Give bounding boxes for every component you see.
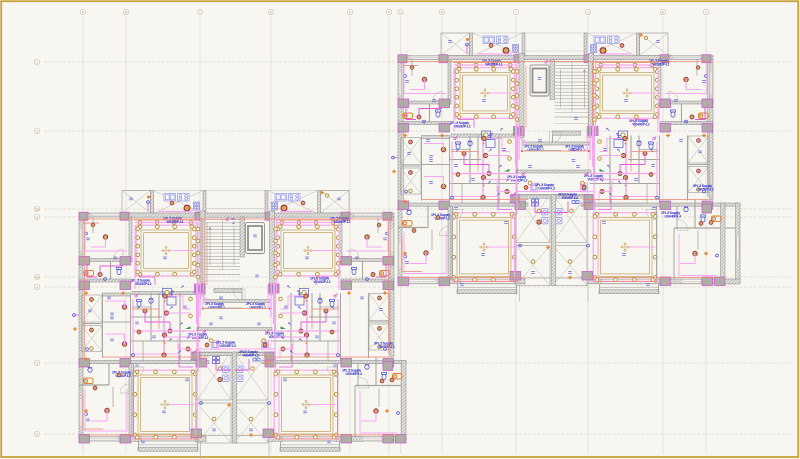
svg-text:1PL.5 SupplyUG040P-L4: 1PL.5 SupplyUG040P-L4 [342, 369, 362, 376]
svg-text:G: G [399, 10, 402, 14]
svg-text:1PL.5 SupplyUG0DP-L2: 1PL.5 SupplyUG0DP-L2 [431, 213, 450, 220]
svg-text:I: I [516, 10, 517, 14]
svg-text:4: 4 [36, 285, 38, 289]
svg-text:1PL.5 SupplyW030DP-L2: 1PL.5 SupplyW030DP-L2 [131, 279, 152, 286]
svg-text:C: C [199, 10, 202, 14]
svg-text:1PL.5 SupplyUG040P-L4: 1PL.5 SupplyUG040P-L4 [661, 211, 681, 218]
svg-text:1PL.5 SupplyW030DP-L2: 1PL.5 SupplyW030DP-L2 [450, 121, 471, 128]
svg-text:1PL.5 SupplyUG030P-L2: 1PL.5 SupplyUG030P-L2 [535, 183, 555, 190]
svg-text:6: 6 [36, 432, 38, 436]
svg-text:D: D [270, 10, 273, 14]
svg-text:2P2.5 SupplyVG040P-L2: 2P2.5 SupplyVG040P-L2 [558, 193, 578, 200]
svg-text:4a: 4a [35, 275, 39, 279]
svg-text:1PL.5 SupplyUG030P-L2: 1PL.5 SupplyUG030P-L2 [216, 341, 236, 348]
svg-text:J: J [587, 10, 589, 14]
svg-text:L: L [705, 10, 707, 14]
svg-text:1PL.5 SupplyUG0DP-L2: 1PL.5 SupplyUG0DP-L2 [112, 371, 131, 378]
svg-text:3a: 3a [35, 207, 39, 211]
svg-text:5: 5 [36, 361, 38, 365]
svg-text:3: 3 [36, 215, 38, 219]
svg-text:1: 1 [36, 60, 38, 64]
svg-text:1PL.5 SupplyW040DP-L2: 1PL.5 SupplyW040DP-L2 [310, 277, 331, 284]
svg-text:1PL.5 SupplyW040DP-L2: 1PL.5 SupplyW040DP-L2 [629, 119, 650, 126]
svg-text:2P2.5 SupplyVG040P-L2: 2P2.5 SupplyVG040P-L2 [239, 350, 259, 357]
svg-text:H: H [441, 10, 444, 14]
svg-text:2: 2 [36, 129, 38, 133]
